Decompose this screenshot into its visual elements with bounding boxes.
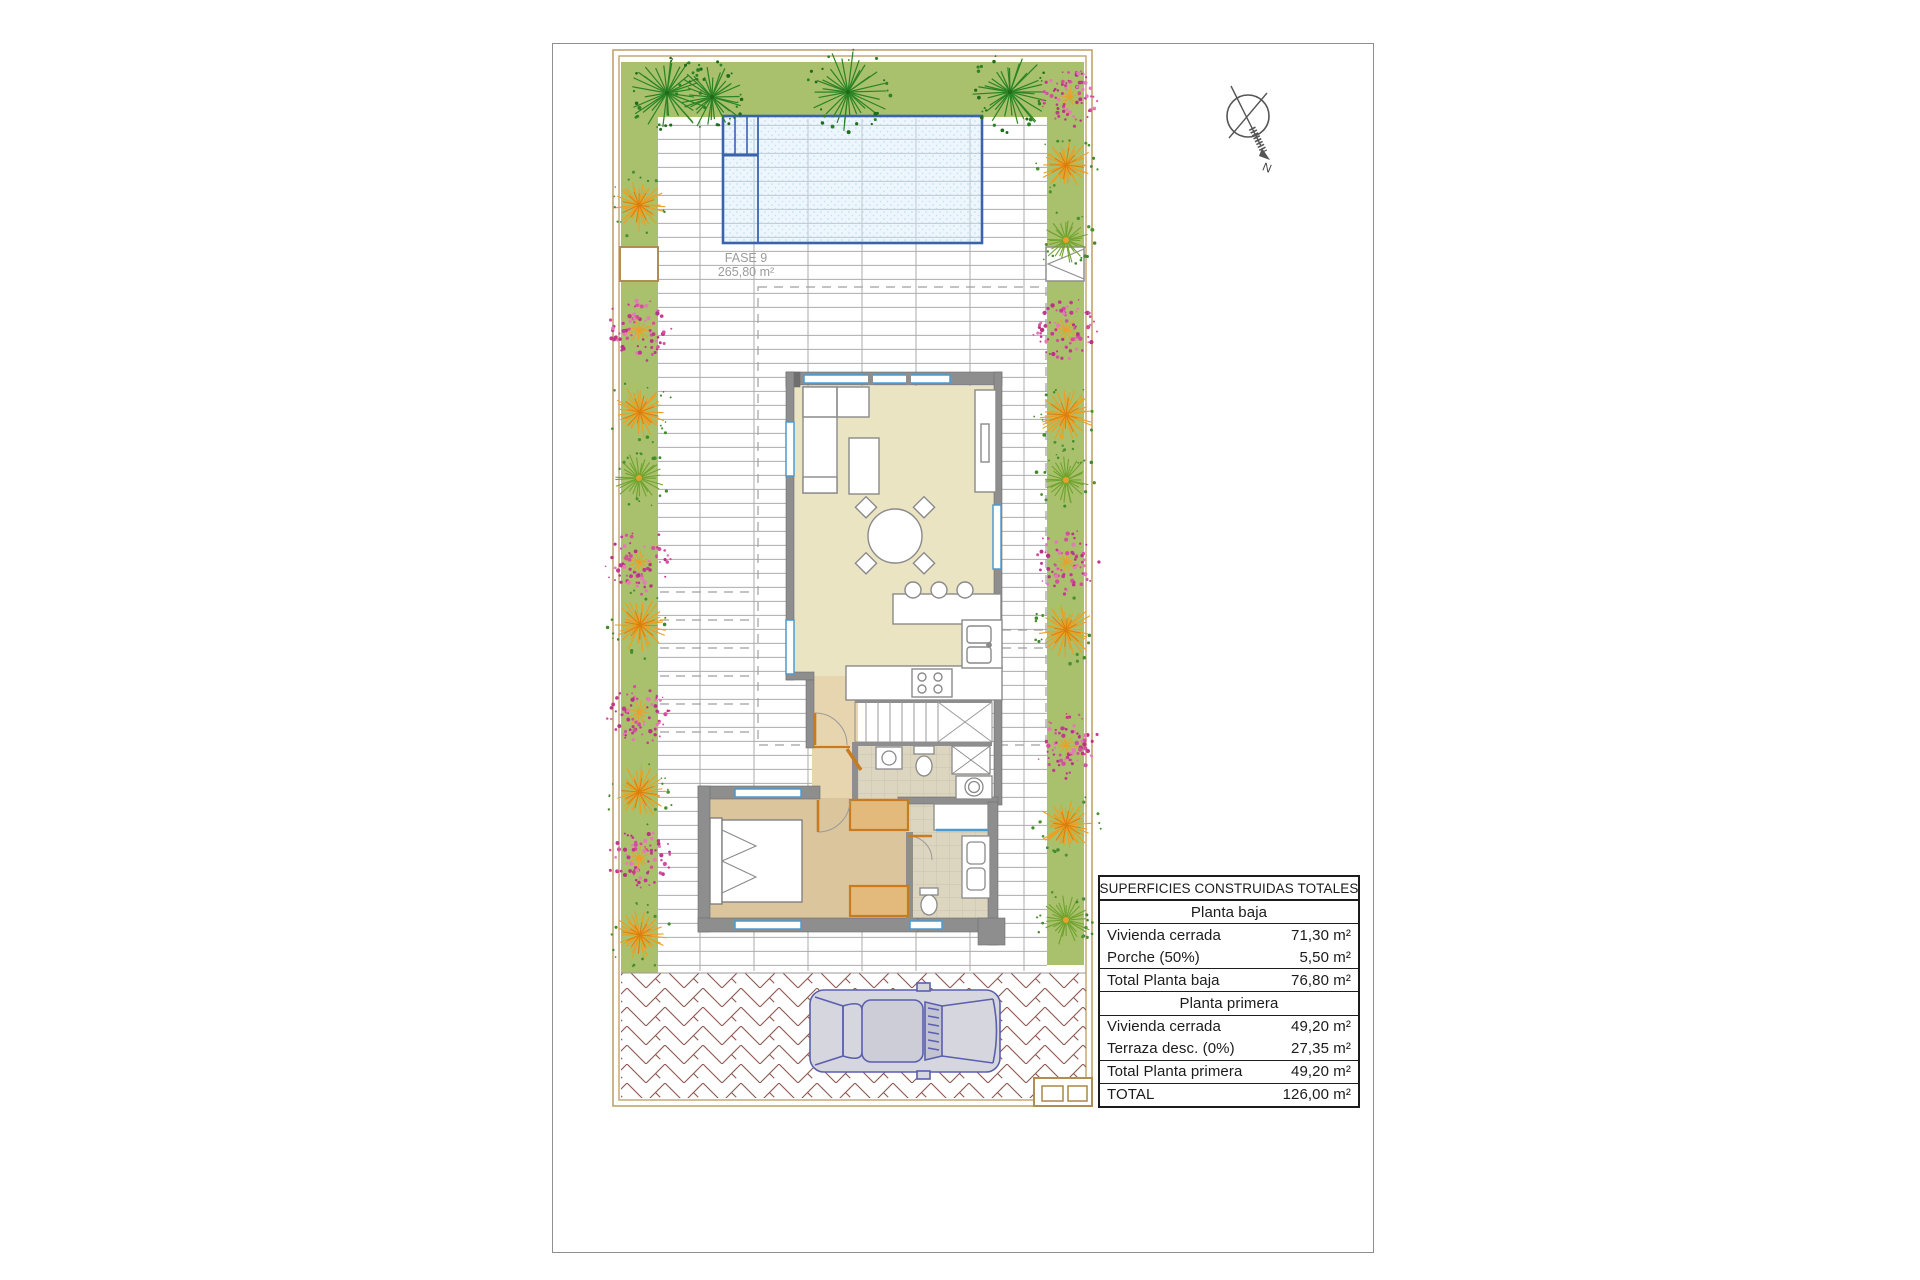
fase-label-line1: FASE 9 xyxy=(725,251,767,265)
table-row-total: Total Planta primera 49,20 m² xyxy=(1100,1060,1358,1083)
hob xyxy=(912,669,952,697)
sofa-armrest xyxy=(803,477,837,493)
tv xyxy=(981,424,989,462)
bed-headboard xyxy=(710,818,722,904)
table-row-total: Total Planta baja 76,80 m² xyxy=(1100,968,1358,991)
kitchen-sink xyxy=(967,647,991,663)
window-mullion xyxy=(868,373,873,385)
table-title-text: SUPERFICIES CONSTRUIDAS TOTALES xyxy=(1100,881,1359,896)
table-section-planta-primera: Planta primera xyxy=(1100,991,1358,1015)
wardrobe xyxy=(850,886,908,916)
toilet-tank xyxy=(914,746,934,754)
coffee-table xyxy=(849,438,879,494)
toilet-bowl xyxy=(916,756,932,776)
dining-table xyxy=(868,509,922,563)
ensuite-toilet-bowl xyxy=(921,895,937,915)
table-row: Vivienda cerrada 49,20 m² xyxy=(1100,1016,1358,1038)
car-mirror xyxy=(917,983,930,991)
bed xyxy=(722,820,802,902)
stairs-floor xyxy=(855,702,992,742)
fase-label: FASE 9 265,80 m² xyxy=(718,251,774,279)
ensuite-toilet-tank xyxy=(920,888,938,895)
wardrobe xyxy=(850,800,908,830)
left-gate xyxy=(620,247,658,281)
compass-n-label: N xyxy=(1260,160,1273,176)
garden-strip-left xyxy=(621,117,658,973)
table-row-grand-total: TOTAL 126,00 m² xyxy=(1100,1083,1358,1106)
bar-stool xyxy=(931,582,947,598)
site-plan-drawing: FASE 9 265,80 m² xyxy=(0,0,1920,1280)
bar-stool xyxy=(905,582,921,598)
ensuite-shower xyxy=(934,804,988,830)
table-row: Terraza desc. (0%) 27,35 m² xyxy=(1100,1038,1358,1060)
table-title: SUPERFICIES CONSTRUIDAS TOTALES xyxy=(1100,877,1358,900)
swimming-pool xyxy=(723,116,982,243)
table-section-planta-baja: Planta baja xyxy=(1100,900,1358,924)
table-row: Vivienda cerrada 71,30 m² xyxy=(1100,924,1358,946)
floor-plan-page: FASE 9 265,80 m² xyxy=(0,0,1920,1280)
table-row: Porche (50%) 5,50 m² xyxy=(1100,946,1358,968)
window-mullion xyxy=(906,373,911,385)
areas-table: SUPERFICIES CONSTRUIDAS TOTALES Planta b… xyxy=(1098,875,1360,1108)
bar-stool xyxy=(957,582,973,598)
entrance-gate-box xyxy=(1034,1078,1092,1106)
car xyxy=(810,983,1000,1079)
kitchen-sink xyxy=(967,626,991,643)
car-mirror xyxy=(917,1071,930,1079)
compass-north-arrow: N xyxy=(1227,86,1274,176)
fase-label-line2: 265,80 m² xyxy=(718,265,774,279)
